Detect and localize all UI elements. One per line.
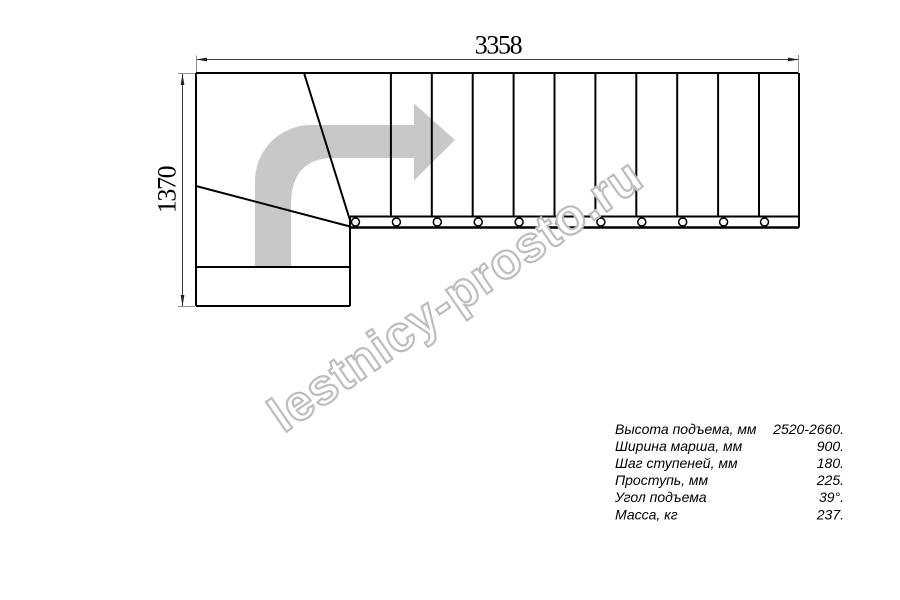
- svg-text:237.: 237.: [816, 506, 844, 522]
- svg-text:Проступь, мм: Проступь, мм: [615, 472, 709, 488]
- svg-text:Шаг ступеней, мм: Шаг ступеней, мм: [615, 455, 738, 471]
- svg-text:2520-2660.: 2520-2660.: [772, 421, 844, 437]
- svg-text:Масса, кг: Масса, кг: [615, 506, 678, 522]
- svg-text:39°.: 39°.: [819, 489, 844, 505]
- svg-text:180.: 180.: [817, 455, 844, 471]
- svg-text:Угол подъема: Угол подъема: [614, 489, 707, 505]
- svg-text:Ширина марша, мм: Ширина марша, мм: [615, 438, 743, 454]
- svg-text:225.: 225.: [816, 472, 844, 488]
- svg-text:3358: 3358: [475, 31, 523, 60]
- svg-text:900.: 900.: [817, 438, 844, 454]
- svg-text:Высота подъема, мм: Высота подъема, мм: [615, 421, 757, 437]
- svg-text:1370: 1370: [153, 165, 182, 213]
- svg-text:lestnicy-prosto.ru: lestnicy-prosto.ru: [258, 147, 653, 443]
